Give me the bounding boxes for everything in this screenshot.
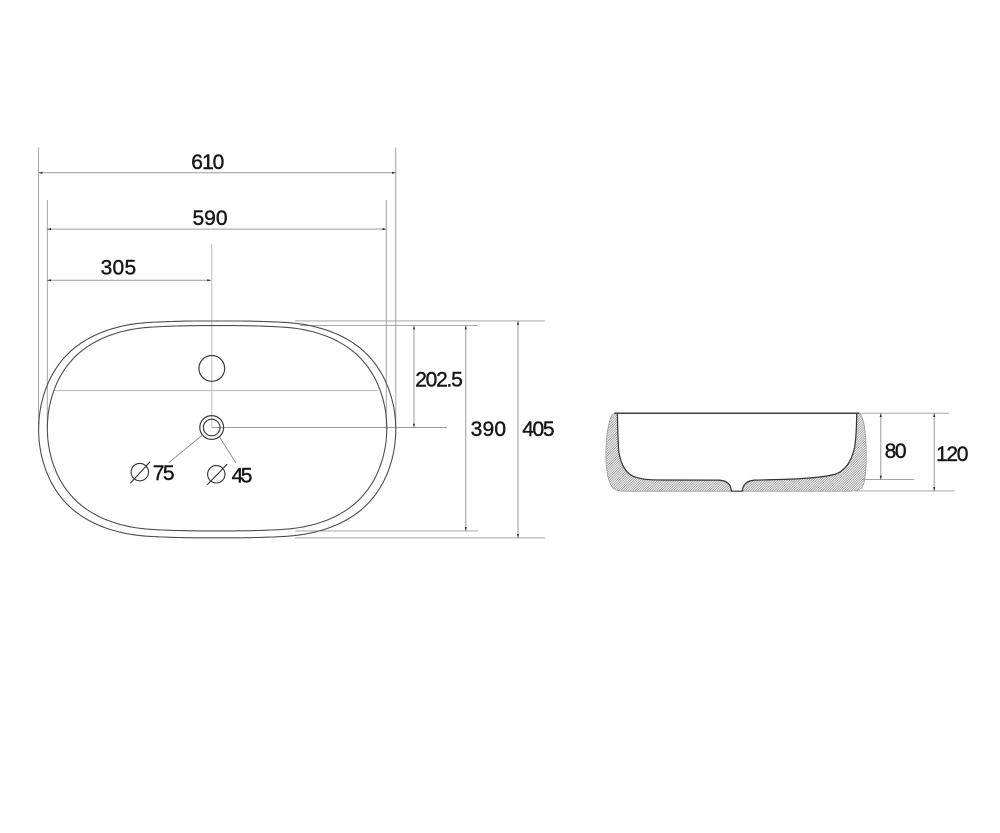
svg-text:610: 610 [191, 151, 224, 174]
svg-text:202.5: 202.5 [415, 368, 463, 391]
svg-text:120: 120 [936, 443, 968, 466]
svg-text:590: 590 [193, 207, 228, 230]
svg-text:405: 405 [522, 418, 554, 441]
svg-text:390: 390 [471, 418, 506, 441]
svg-text:80: 80 [885, 440, 907, 463]
svg-text:45: 45 [232, 464, 253, 487]
svg-text:75: 75 [153, 462, 175, 485]
svg-text:305: 305 [101, 256, 136, 279]
